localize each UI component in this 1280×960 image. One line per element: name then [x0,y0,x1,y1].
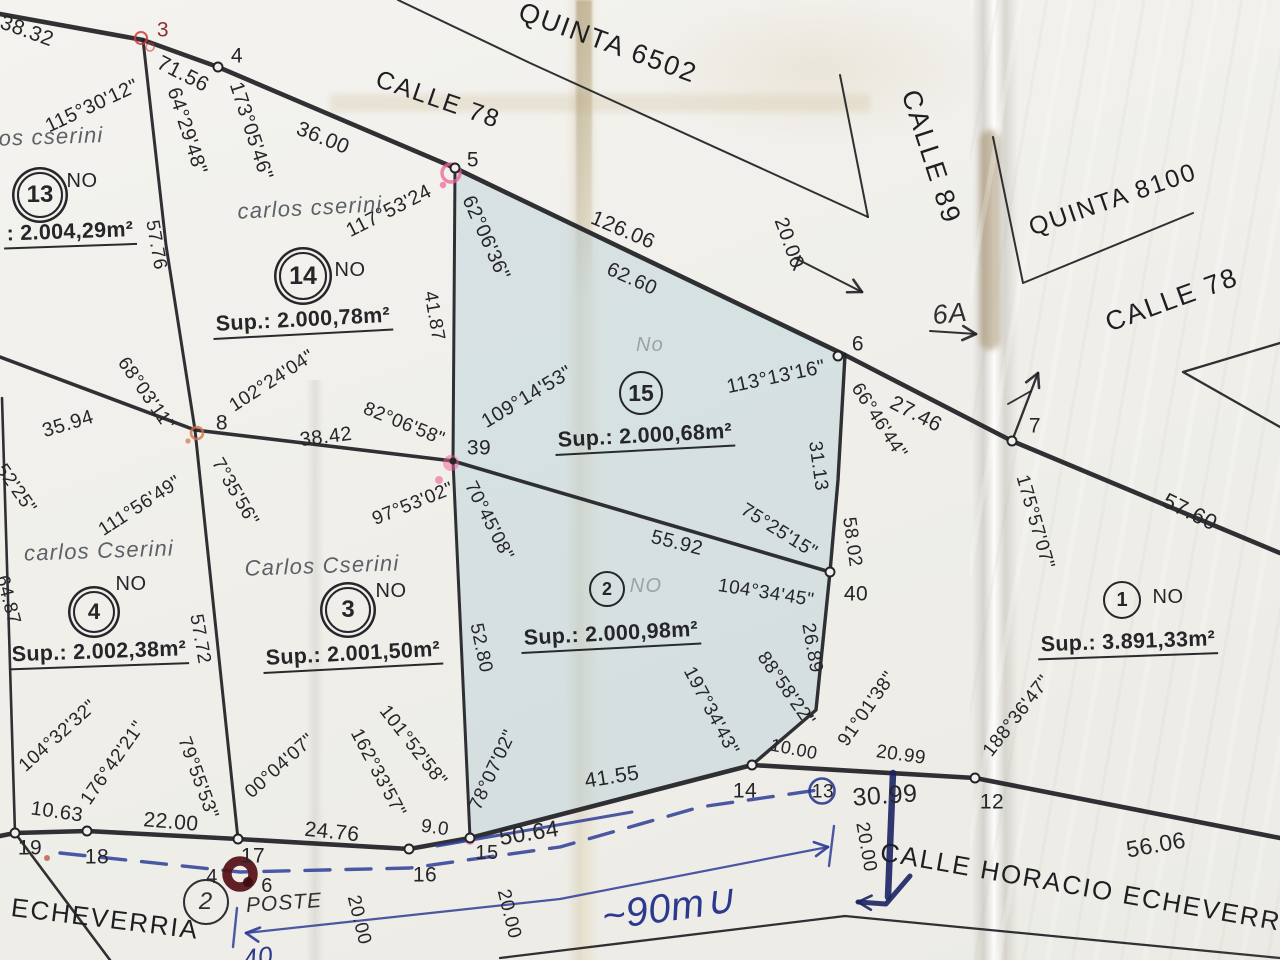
survey-map-sheet: 38.3271.56115°30'12"173°05'46"64°29'48"3… [0,0,1280,960]
photo-vignette [0,0,1280,960]
